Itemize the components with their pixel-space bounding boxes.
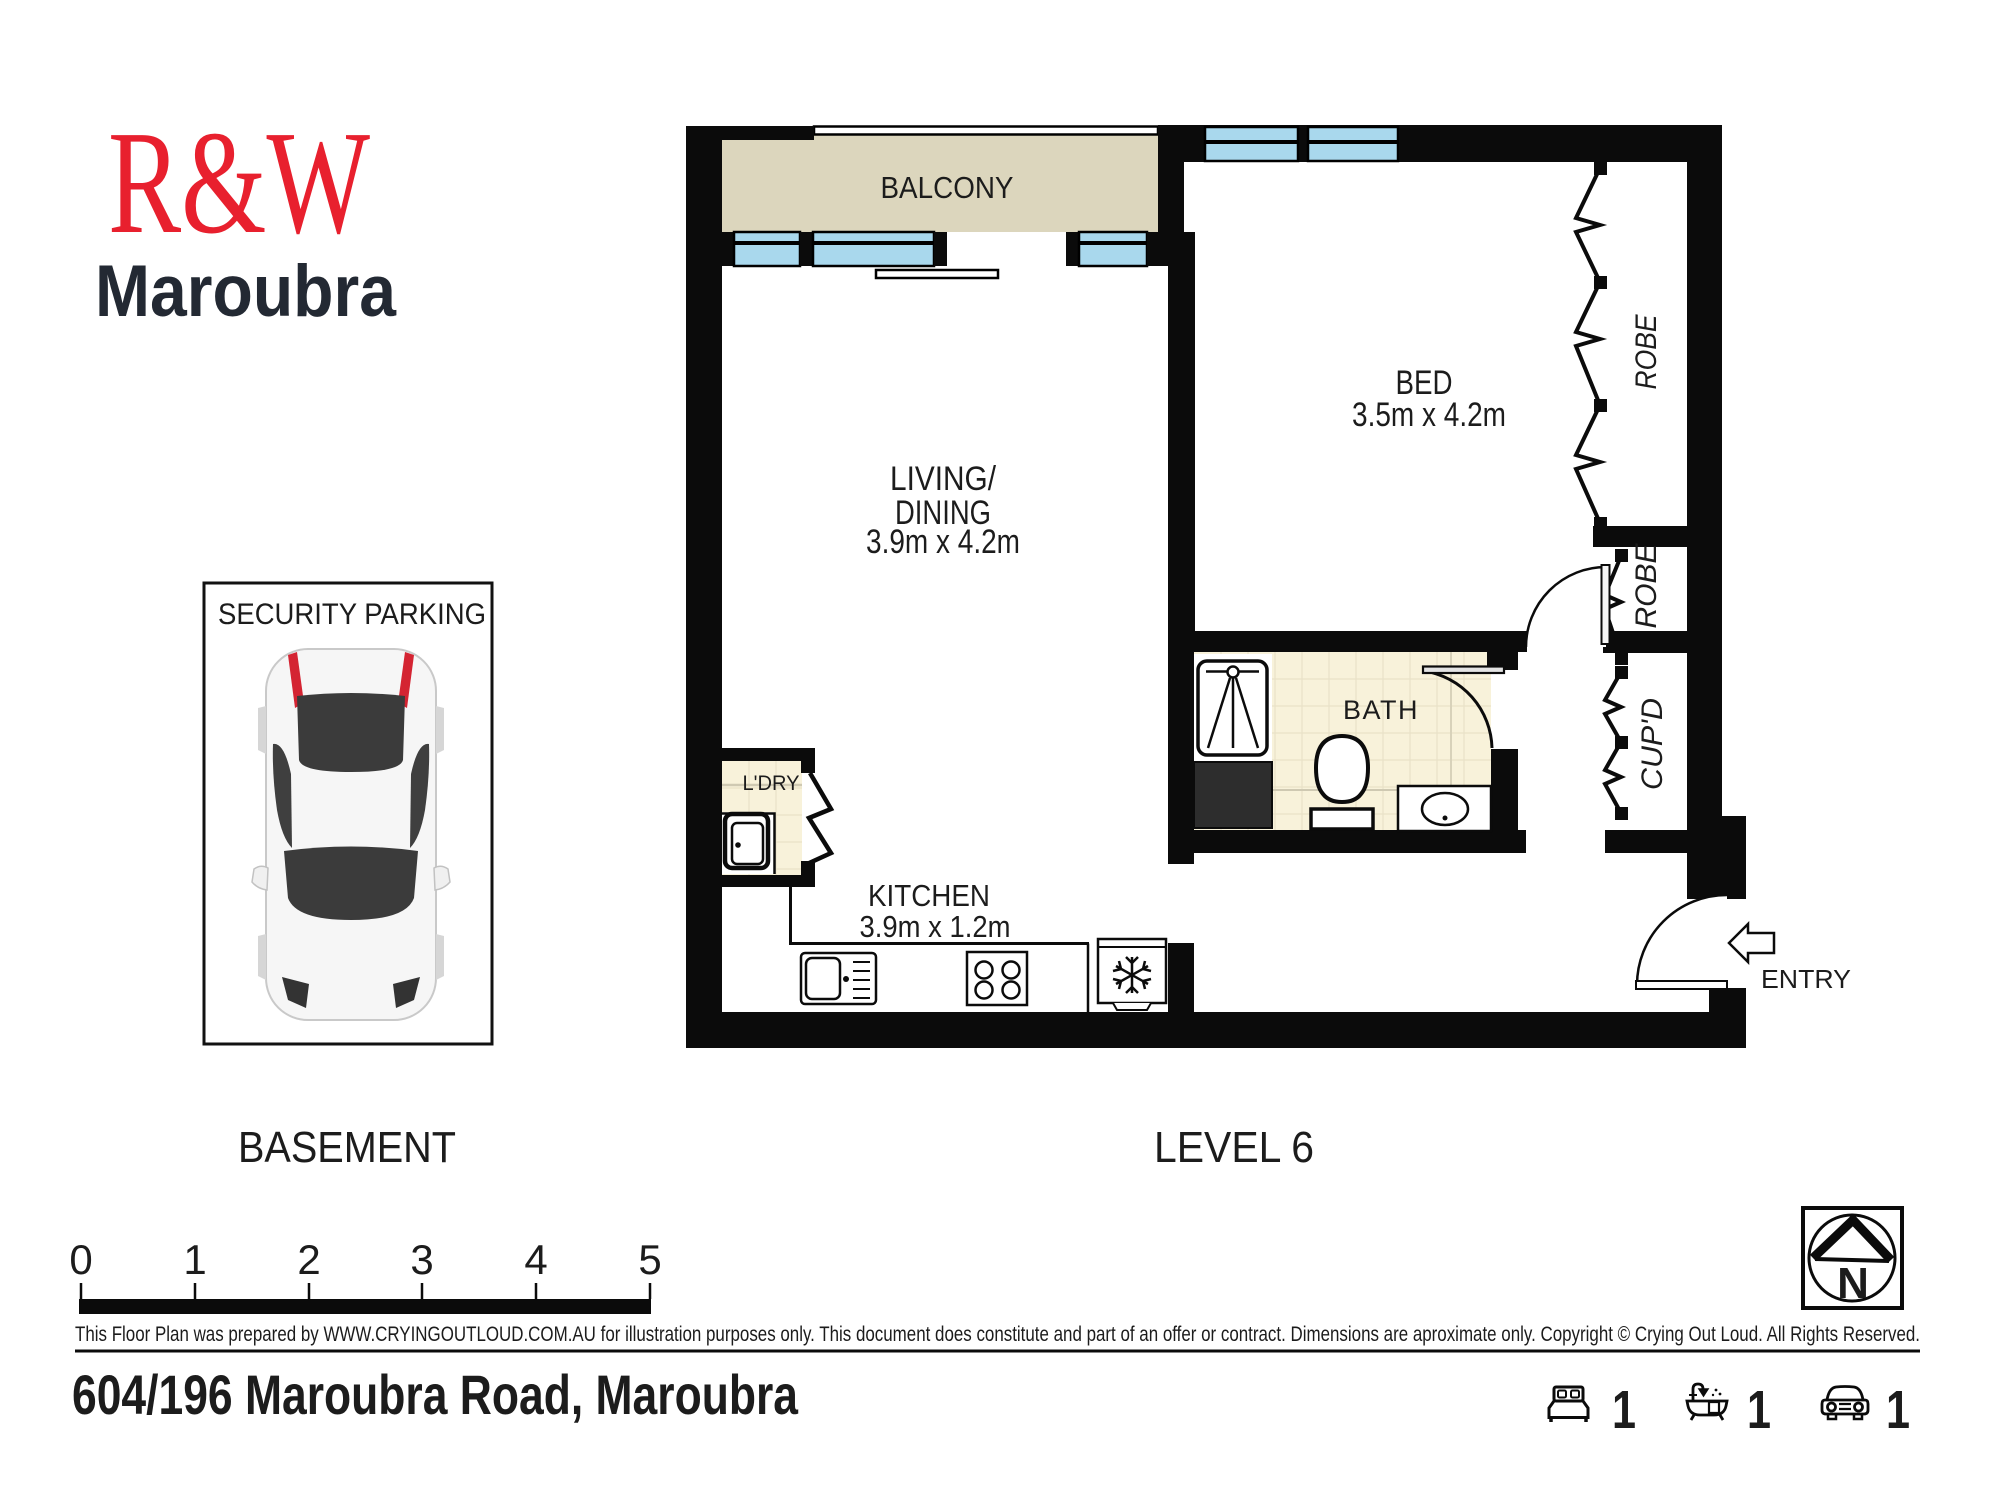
svg-text:SECURITY PARKING: SECURITY PARKING <box>218 598 486 631</box>
svg-text:BATH: BATH <box>1343 695 1419 725</box>
svg-text:LIVING/: LIVING/ <box>890 460 996 498</box>
svg-text:3.9m x 4.2m: 3.9m x 4.2m <box>866 523 1020 561</box>
svg-text:BASEMENT: BASEMENT <box>238 1123 456 1172</box>
svg-text:1: 1 <box>183 1236 206 1283</box>
svg-text:ROBE: ROBE <box>1630 314 1663 390</box>
svg-text:3.9m x 1.2m: 3.9m x 1.2m <box>860 909 1011 944</box>
svg-text:3: 3 <box>410 1236 433 1283</box>
svg-text:N: N <box>1837 1259 1869 1308</box>
svg-text:1: 1 <box>1886 1380 1910 1440</box>
svg-text:1: 1 <box>1612 1380 1636 1440</box>
svg-text:KITCHEN: KITCHEN <box>868 878 990 913</box>
svg-text:0: 0 <box>69 1236 92 1283</box>
svg-text:This Floor Plan was prepared b: This Floor Plan was prepared by WWW.CRYI… <box>75 1322 1920 1346</box>
svg-text:CUP'D: CUP'D <box>1636 698 1669 790</box>
svg-text:4: 4 <box>524 1236 547 1283</box>
svg-text:BALCONY: BALCONY <box>881 170 1014 205</box>
svg-text:604/196 Maroubra Road, Maroubr: 604/196 Maroubra Road, Maroubra <box>72 1363 799 1426</box>
svg-text:2: 2 <box>297 1236 320 1283</box>
svg-text:Maroubra: Maroubra <box>95 251 397 332</box>
svg-text:L'DRY: L'DRY <box>743 772 800 795</box>
svg-text:ENTRY: ENTRY <box>1761 964 1851 994</box>
svg-text:1: 1 <box>1747 1380 1771 1440</box>
svg-text:LEVEL 6: LEVEL 6 <box>1154 1123 1314 1172</box>
svg-text:5: 5 <box>638 1236 661 1283</box>
svg-text:R&W: R&W <box>108 101 370 265</box>
svg-text:3.5m x 4.2m: 3.5m x 4.2m <box>1352 396 1506 434</box>
svg-text:ROBE: ROBE <box>1630 543 1663 629</box>
